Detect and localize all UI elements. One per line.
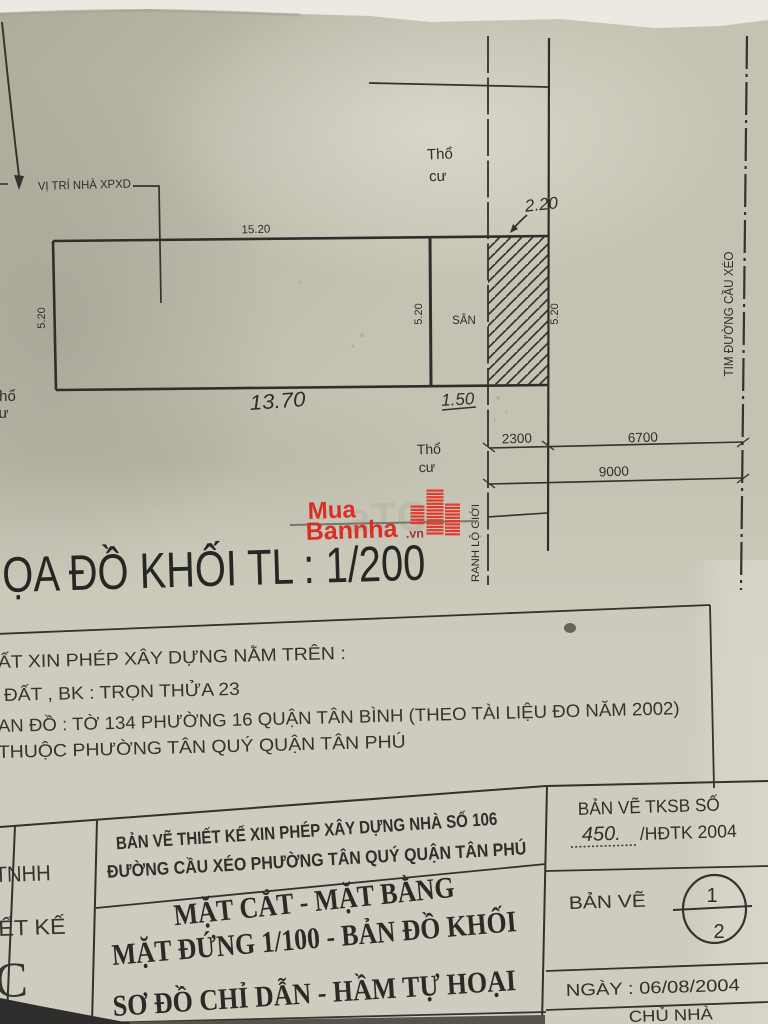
- svg-text:2.20: 2.20: [523, 193, 559, 216]
- svg-text:2: 2: [713, 921, 724, 943]
- svg-text:2300: 2300: [502, 430, 533, 446]
- svg-text:cư: cư: [429, 168, 447, 186]
- svg-text:5.20: 5.20: [549, 303, 561, 324]
- svg-text:9000: 9000: [599, 463, 630, 479]
- svg-text:BẢN VẼ TKSB SỐ: BẢN VẼ TKSB SỐ: [577, 794, 720, 819]
- svg-text:5.20: 5.20: [36, 307, 48, 328]
- svg-text:15.20: 15.20: [241, 224, 270, 237]
- svg-text:TNHH: TNHH: [0, 860, 51, 887]
- svg-text:1.50: 1.50: [441, 389, 476, 410]
- svg-text:Thổ: Thổ: [0, 388, 16, 405]
- svg-text:SÂN: SÂN: [452, 314, 476, 327]
- svg-text:13.70: 13.70: [249, 388, 307, 415]
- svg-text:5.20: 5.20: [413, 303, 425, 324]
- svg-text:cư: cư: [0, 405, 9, 422]
- svg-text:RANH LỘ GIỚI: RANH LỘ GIỚI: [469, 504, 482, 582]
- svg-text:1: 1: [706, 885, 717, 907]
- svg-text:450.: 450.: [581, 823, 621, 846]
- svg-text:6700: 6700: [628, 429, 659, 445]
- svg-text:VỊ TRÍ NHÀ XPXD: VỊ TRÍ NHÀ XPXD: [38, 176, 132, 193]
- svg-text:/HĐTK 2004: /HĐTK 2004: [639, 821, 737, 844]
- svg-text:IẾT KẾ: IẾT KẾ: [0, 914, 66, 942]
- svg-text:Thổ: Thổ: [416, 441, 441, 458]
- svg-text:TIM ĐƯỜNG CẦU XÉO: TIM ĐƯỜNG CẦU XÉO: [721, 251, 736, 376]
- svg-text:Thổ: Thổ: [427, 146, 453, 164]
- svg-text:cư: cư: [418, 459, 435, 476]
- svg-text:BẢN VẼ: BẢN VẼ: [568, 890, 646, 913]
